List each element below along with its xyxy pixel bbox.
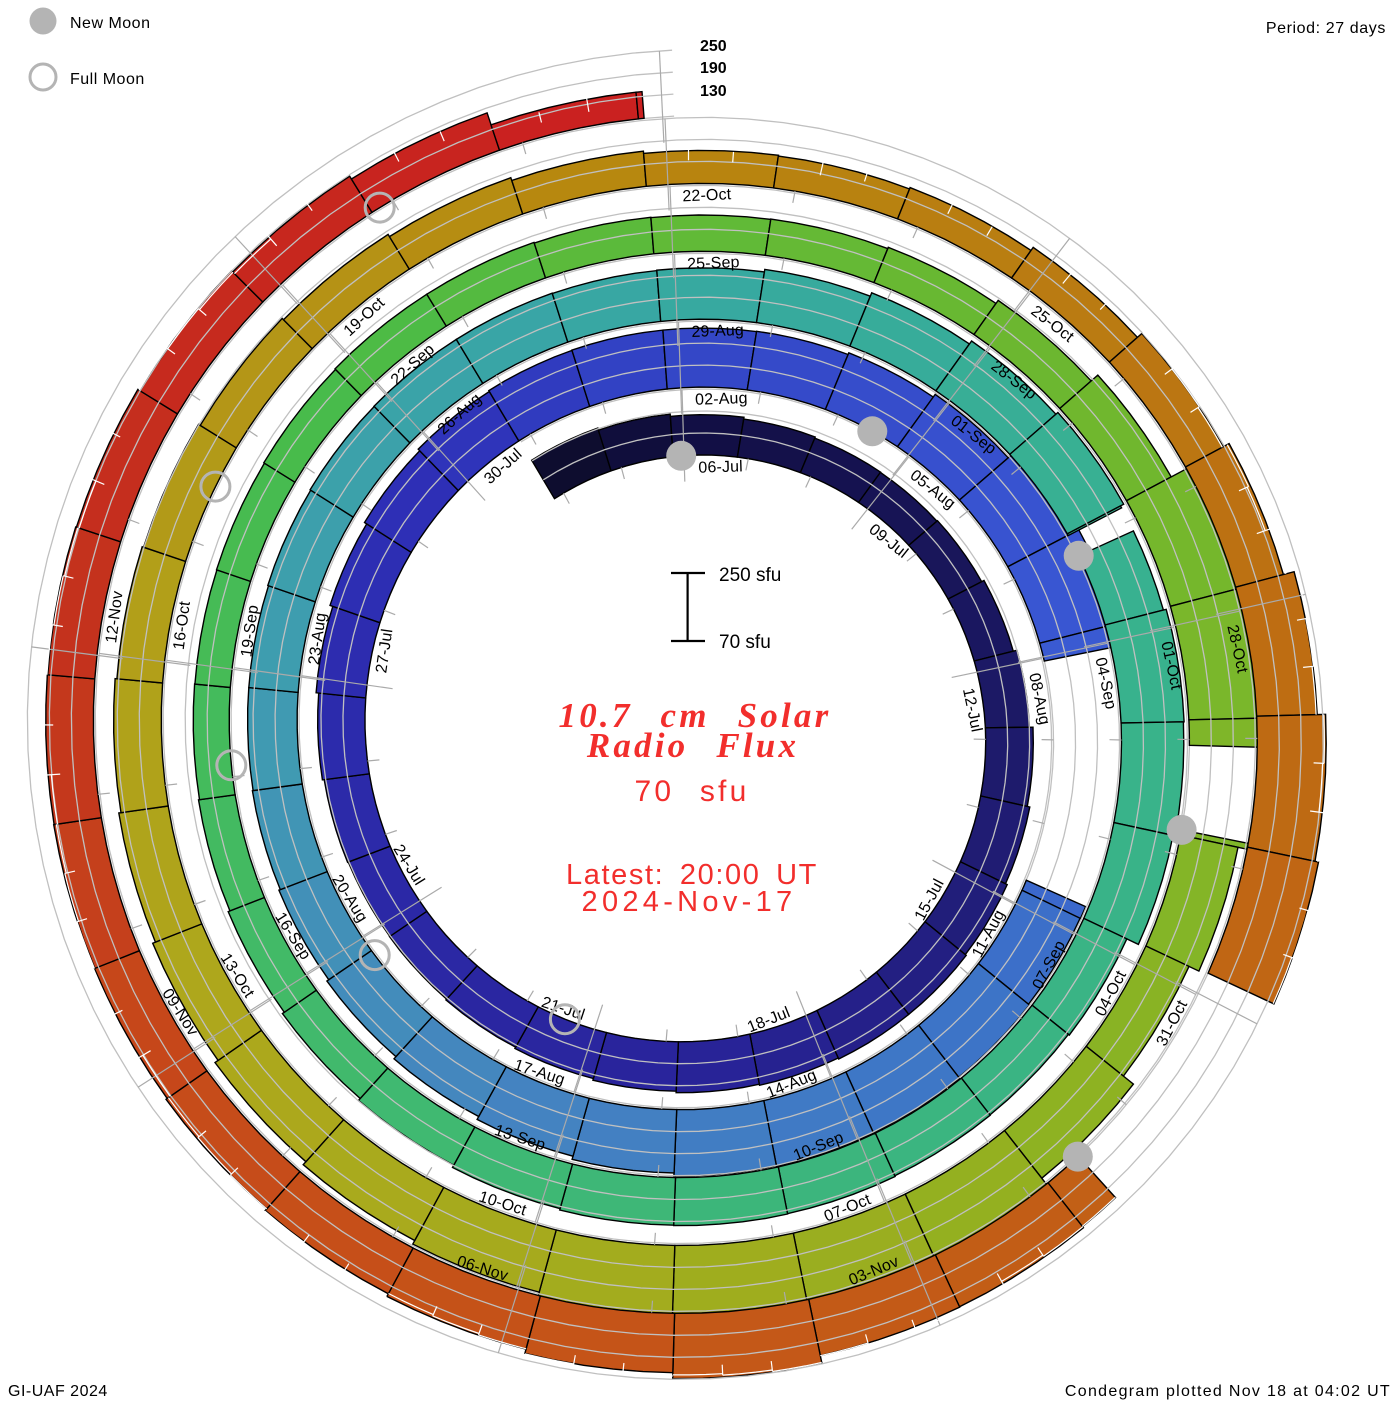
svg-text:70 sfu: 70 sfu: [635, 775, 750, 808]
svg-text:70 sfu: 70 sfu: [719, 632, 771, 653]
svg-text:Period: 27 days: Period: 27 days: [1266, 20, 1386, 37]
svg-text:06-Jul: 06-Jul: [698, 458, 743, 476]
svg-text:130: 130: [700, 83, 727, 100]
svg-text:250 sfu: 250 sfu: [719, 565, 781, 586]
svg-text:25-Sep: 25-Sep: [687, 254, 740, 273]
svg-text:New Moon: New Moon: [70, 15, 150, 32]
svg-text:2024-Nov-17: 2024-Nov-17: [582, 886, 797, 918]
svg-text:Radio Flux: Radio Flux: [586, 726, 799, 765]
svg-text:02-Aug: 02-Aug: [695, 390, 748, 409]
svg-text:GI-UAF 2024: GI-UAF 2024: [8, 1383, 108, 1400]
svg-text:Condegram plotted Nov 18 at 04: Condegram plotted Nov 18 at 04:02 UT: [1065, 1383, 1391, 1400]
svg-text:Full Moon: Full Moon: [70, 71, 145, 88]
svg-text:190: 190: [700, 60, 727, 77]
svg-text:29-Aug: 29-Aug: [691, 322, 744, 341]
svg-text:250: 250: [700, 38, 727, 55]
svg-text:22-Oct: 22-Oct: [682, 186, 732, 205]
